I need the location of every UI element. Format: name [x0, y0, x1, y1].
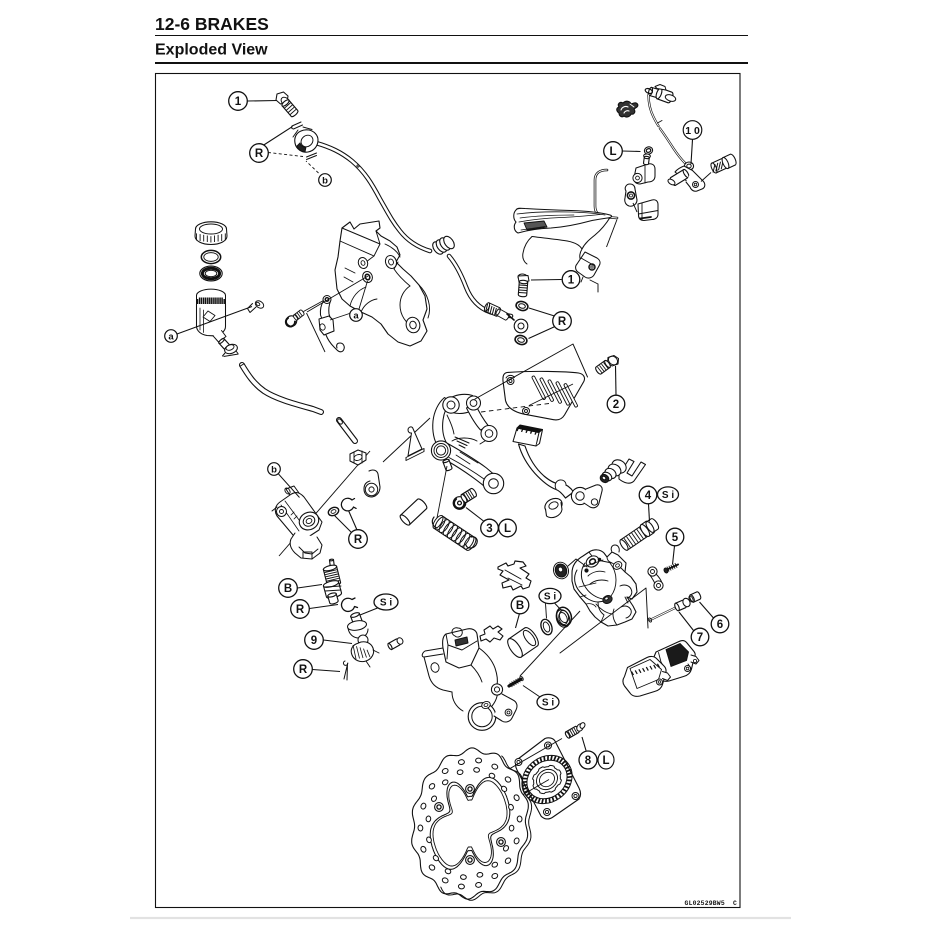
svg-text:b: b [322, 175, 328, 186]
svg-text:2: 2 [613, 399, 619, 411]
svg-text:1: 1 [235, 96, 242, 108]
svg-text:S i: S i [380, 598, 392, 609]
svg-text:B: B [516, 600, 524, 612]
svg-text:R: R [558, 316, 567, 328]
svg-text:GL02529BW5 C: GL02529BW5 C [685, 900, 737, 907]
svg-text:7: 7 [697, 632, 703, 644]
svg-text:12-6 BRAKES: 12-6 BRAKES [155, 14, 269, 34]
svg-text:5: 5 [672, 532, 679, 544]
svg-text:8: 8 [585, 755, 592, 767]
svg-text:a: a [353, 310, 359, 321]
svg-text:L: L [504, 523, 511, 535]
svg-text:S i: S i [662, 490, 674, 501]
svg-text:R: R [296, 604, 305, 616]
svg-text:R: R [255, 148, 264, 160]
svg-text:R: R [354, 534, 363, 546]
svg-text:L: L [609, 146, 616, 158]
svg-text:6: 6 [717, 619, 723, 631]
svg-text:L: L [602, 755, 609, 767]
svg-text:4: 4 [645, 490, 652, 502]
svg-text:b: b [271, 464, 277, 475]
svg-text:1 0: 1 0 [685, 125, 700, 137]
svg-text:S i: S i [544, 592, 556, 603]
svg-text:a: a [168, 331, 174, 342]
svg-text:S i: S i [542, 698, 554, 709]
svg-text:Exploded View: Exploded View [155, 42, 268, 59]
svg-text:R: R [299, 664, 308, 676]
svg-text:B: B [284, 583, 292, 595]
svg-text:1: 1 [568, 275, 575, 287]
svg-text:3: 3 [486, 523, 492, 535]
svg-text:9: 9 [311, 635, 317, 647]
